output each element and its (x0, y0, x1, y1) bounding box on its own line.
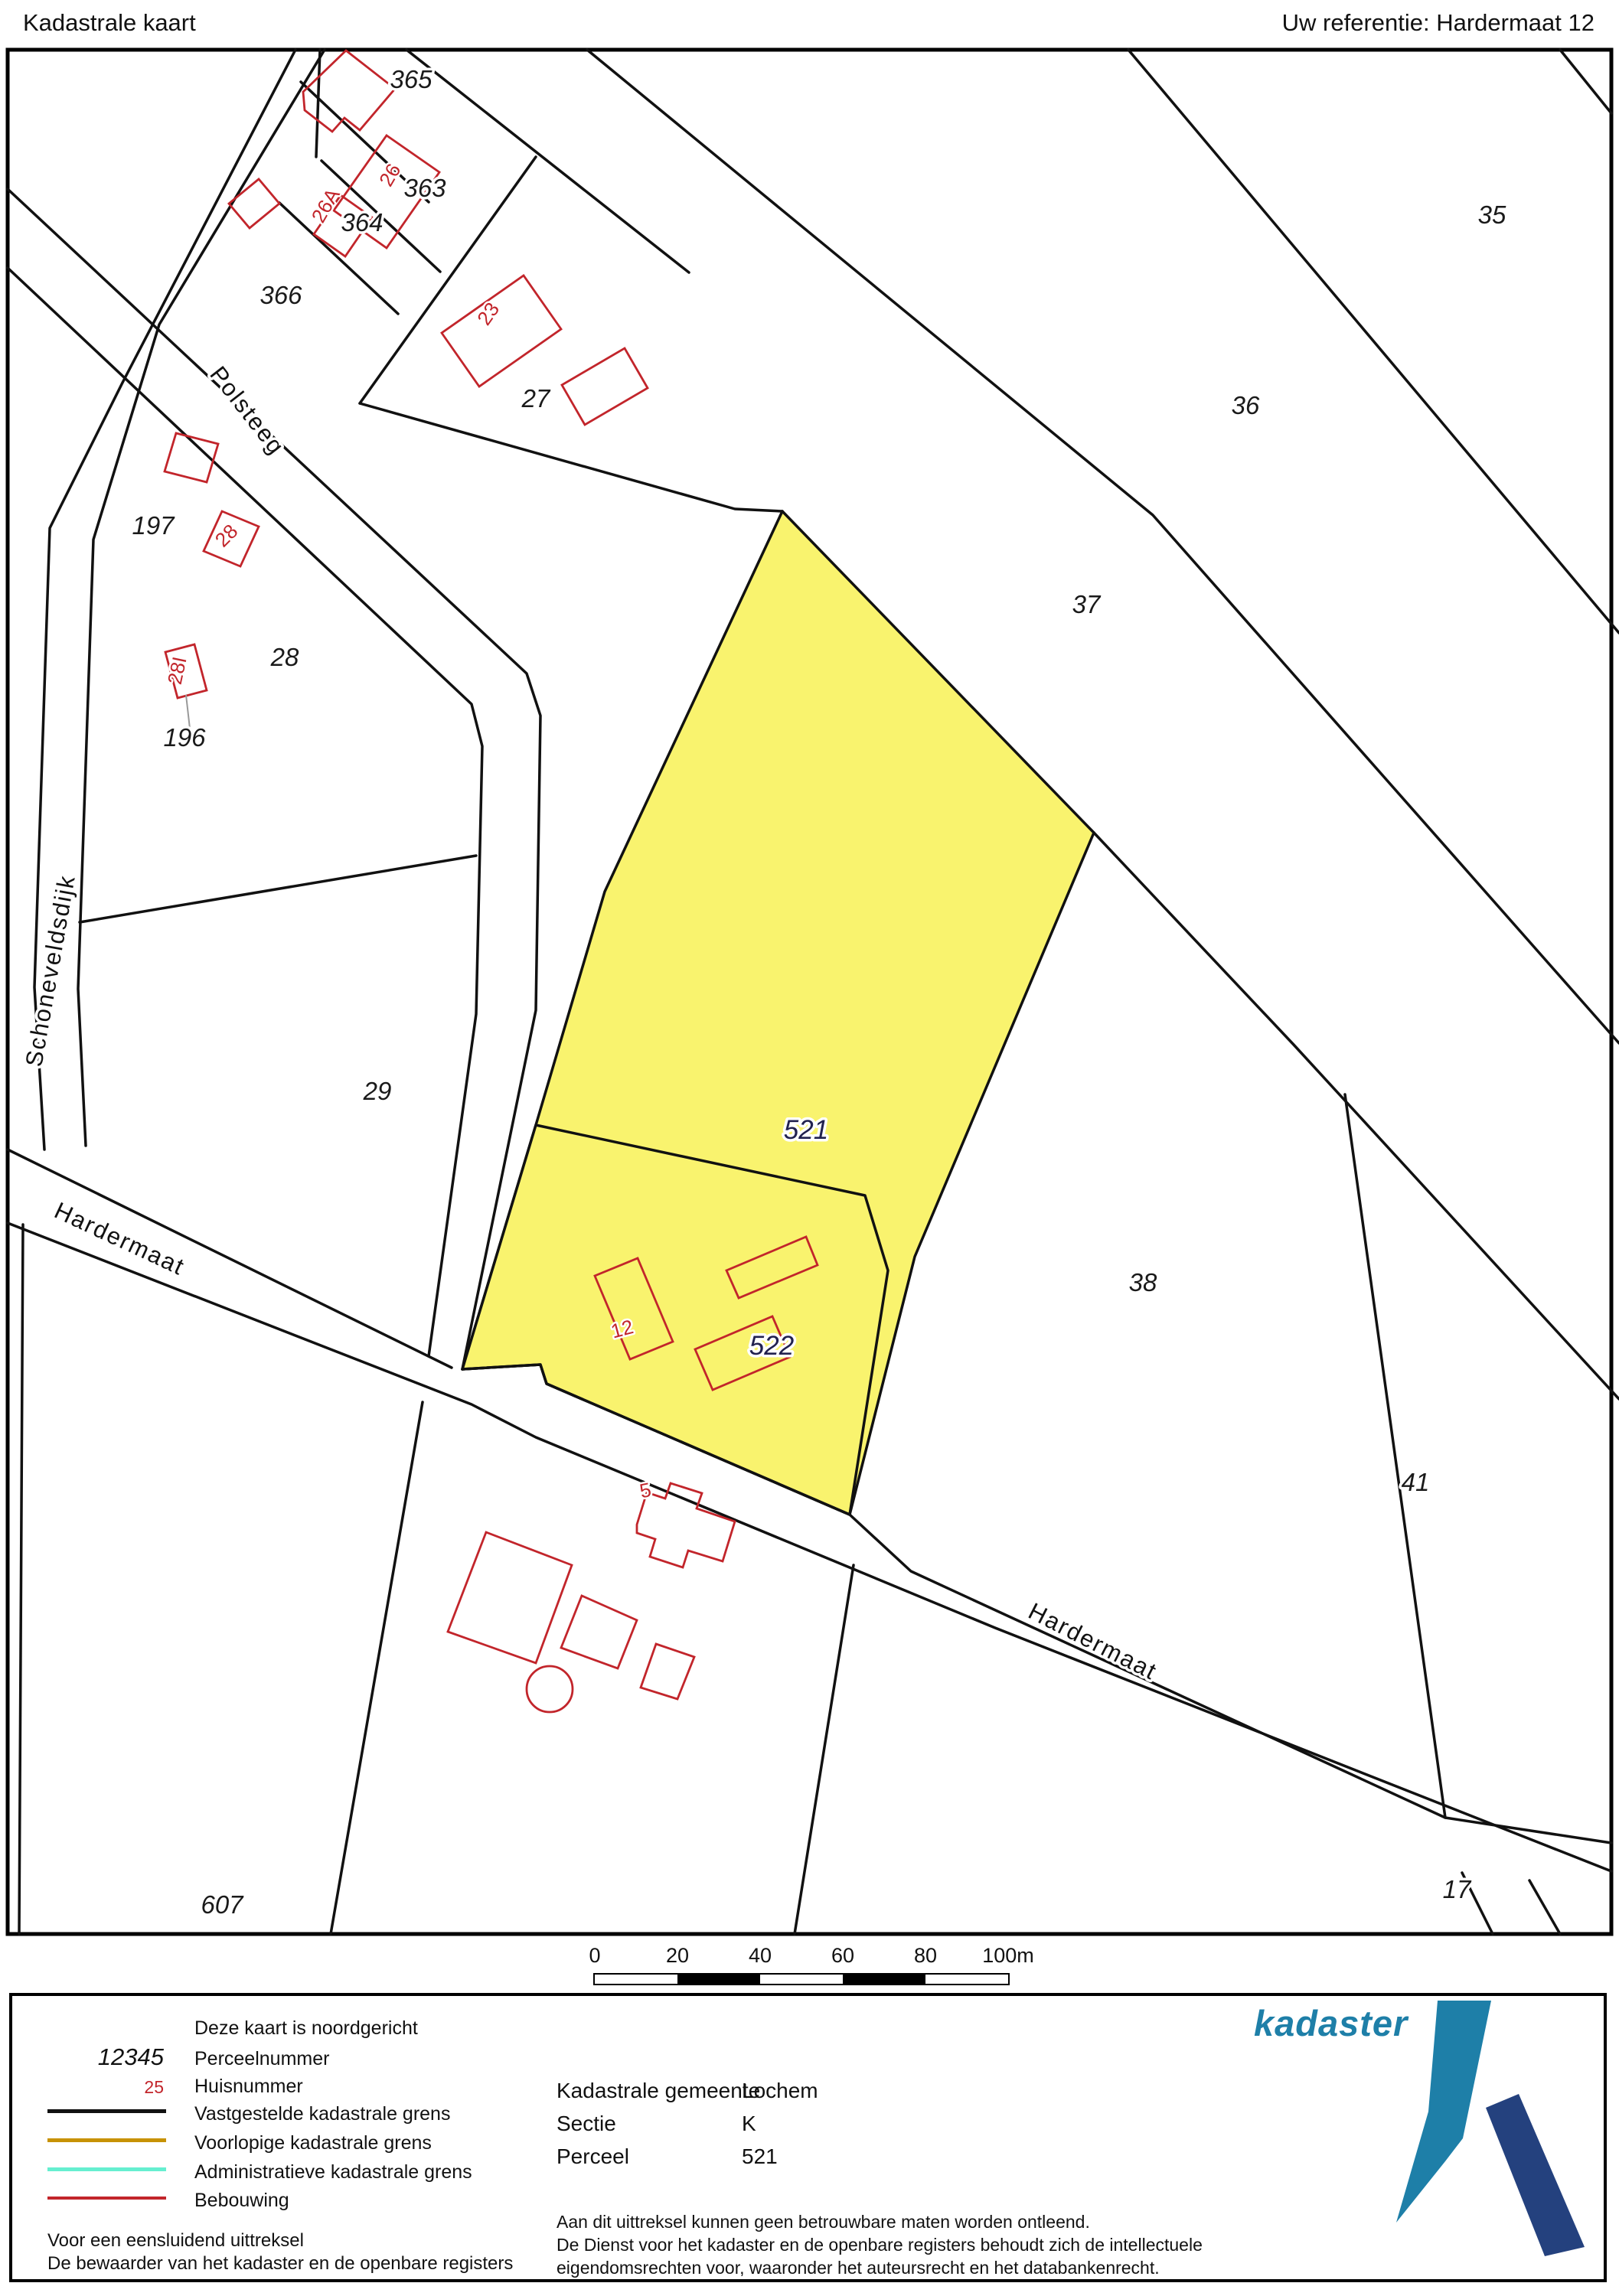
scalebar-segment-3 (843, 1975, 925, 1984)
attestation-line-1: Voor een eensluidend uittreksel (47, 2230, 304, 2252)
info-label-0: Kadastrale gemeente (557, 2079, 760, 2103)
scalebar-tick-100m: 100m (982, 1944, 1034, 1968)
parcel-label-364: 364 (341, 208, 383, 236)
attestation-line-2: De bewaarder van het kadaster en de open… (47, 2253, 513, 2275)
legend-housenumber-label: Huisnummer (194, 2076, 303, 2098)
legend-label-vastgesteld: Vastgestelde kadastrale grens (194, 2103, 450, 2125)
parcel-label-197: 197 (132, 511, 175, 540)
cadastral-map: 3653633643662728291971963536373841176075… (0, 0, 1619, 1994)
selected-parcel-label-521: 521 (784, 1115, 828, 1145)
legend-label-bebouwing: Bebouwing (194, 2190, 289, 2212)
scalebar (593, 1973, 1010, 1985)
kadaster-logo-mark (1382, 2001, 1597, 2272)
info-label-2: Perceel (557, 2144, 629, 2169)
scalebar-segment-2 (760, 1975, 843, 1984)
legend-label-administratief: Administratieve kadastrale grens (194, 2161, 472, 2183)
parcel-label-17: 17 (1443, 1875, 1472, 1903)
info-value-1: K (742, 2112, 756, 2136)
scalebar-segment-0 (595, 1975, 677, 1984)
selected-parcel-label-522: 522 (749, 1331, 794, 1361)
parcel-label-28: 28 (270, 643, 299, 671)
logo-pen-nib (1396, 2001, 1491, 2223)
parcel-label-607: 607 (201, 1890, 244, 1919)
parcel-label-37: 37 (1072, 590, 1102, 618)
parcel-label-363: 363 (403, 174, 446, 202)
parcel-label-365: 365 (390, 65, 432, 93)
cadastral-extract-page: Kadastrale kaart Uw referentie: Harderma… (0, 0, 1619, 2296)
parcel-label-36: 36 (1232, 391, 1260, 419)
legend-parcelnumber-label: Perceelnummer (194, 2048, 329, 2070)
info-value-2: 521 (742, 2144, 778, 2169)
parcel-label-35: 35 (1478, 201, 1506, 229)
scalebar-tick-20: 20 (666, 1944, 689, 1968)
scalebar-tick-0: 0 (589, 1944, 600, 1968)
parcel-label-196: 196 (163, 723, 206, 752)
info-value-0: Lochem (742, 2079, 818, 2103)
scalebar-segment-4 (925, 1975, 1008, 1984)
scalebar-tick-60: 60 (831, 1944, 854, 1968)
parcel-label-29: 29 (363, 1077, 392, 1105)
info-label-1: Sectie (557, 2112, 616, 2136)
legend-line-voorlopig (47, 2138, 166, 2142)
legend-line-administratief (47, 2167, 166, 2171)
scalebar-tick-80: 80 (914, 1944, 937, 1968)
north-note: Deze kaart is noordgericht (194, 2017, 418, 2040)
parcel-label-366: 366 (259, 281, 302, 309)
disclaimer-line-3: eigendomsrechten voor, waaronder het aut… (557, 2258, 1160, 2278)
scalebar-tick-40: 40 (749, 1944, 772, 1968)
legend-parcelnumber-symbol: 12345 (34, 2043, 164, 2071)
map-canvas: 3653633643662728291971963536373841176075… (0, 0, 1619, 1990)
parcel-label-41: 41 (1402, 1468, 1430, 1496)
parcel-label-27: 27 (521, 384, 551, 413)
disclaimer-line-2: De Dienst voor het kadaster en de openba… (557, 2235, 1203, 2255)
legend-panel: Deze kaart is noordgericht 12345 Perceel… (9, 1993, 1607, 2282)
disclaimer-line-1: Aan dit uittreksel kunnen geen betrouwba… (557, 2212, 1090, 2232)
scalebar-segment-1 (677, 1975, 760, 1984)
legend-housenumber-symbol: 25 (34, 2077, 164, 2098)
legend-line-bebouwing (47, 2197, 166, 2200)
logo-stroke (1486, 2094, 1585, 2256)
parcel-label-38: 38 (1129, 1268, 1157, 1296)
legend-label-voorlopig: Voorlopige kadastrale grens (194, 2132, 432, 2154)
legend-line-vastgesteld (47, 2109, 166, 2113)
